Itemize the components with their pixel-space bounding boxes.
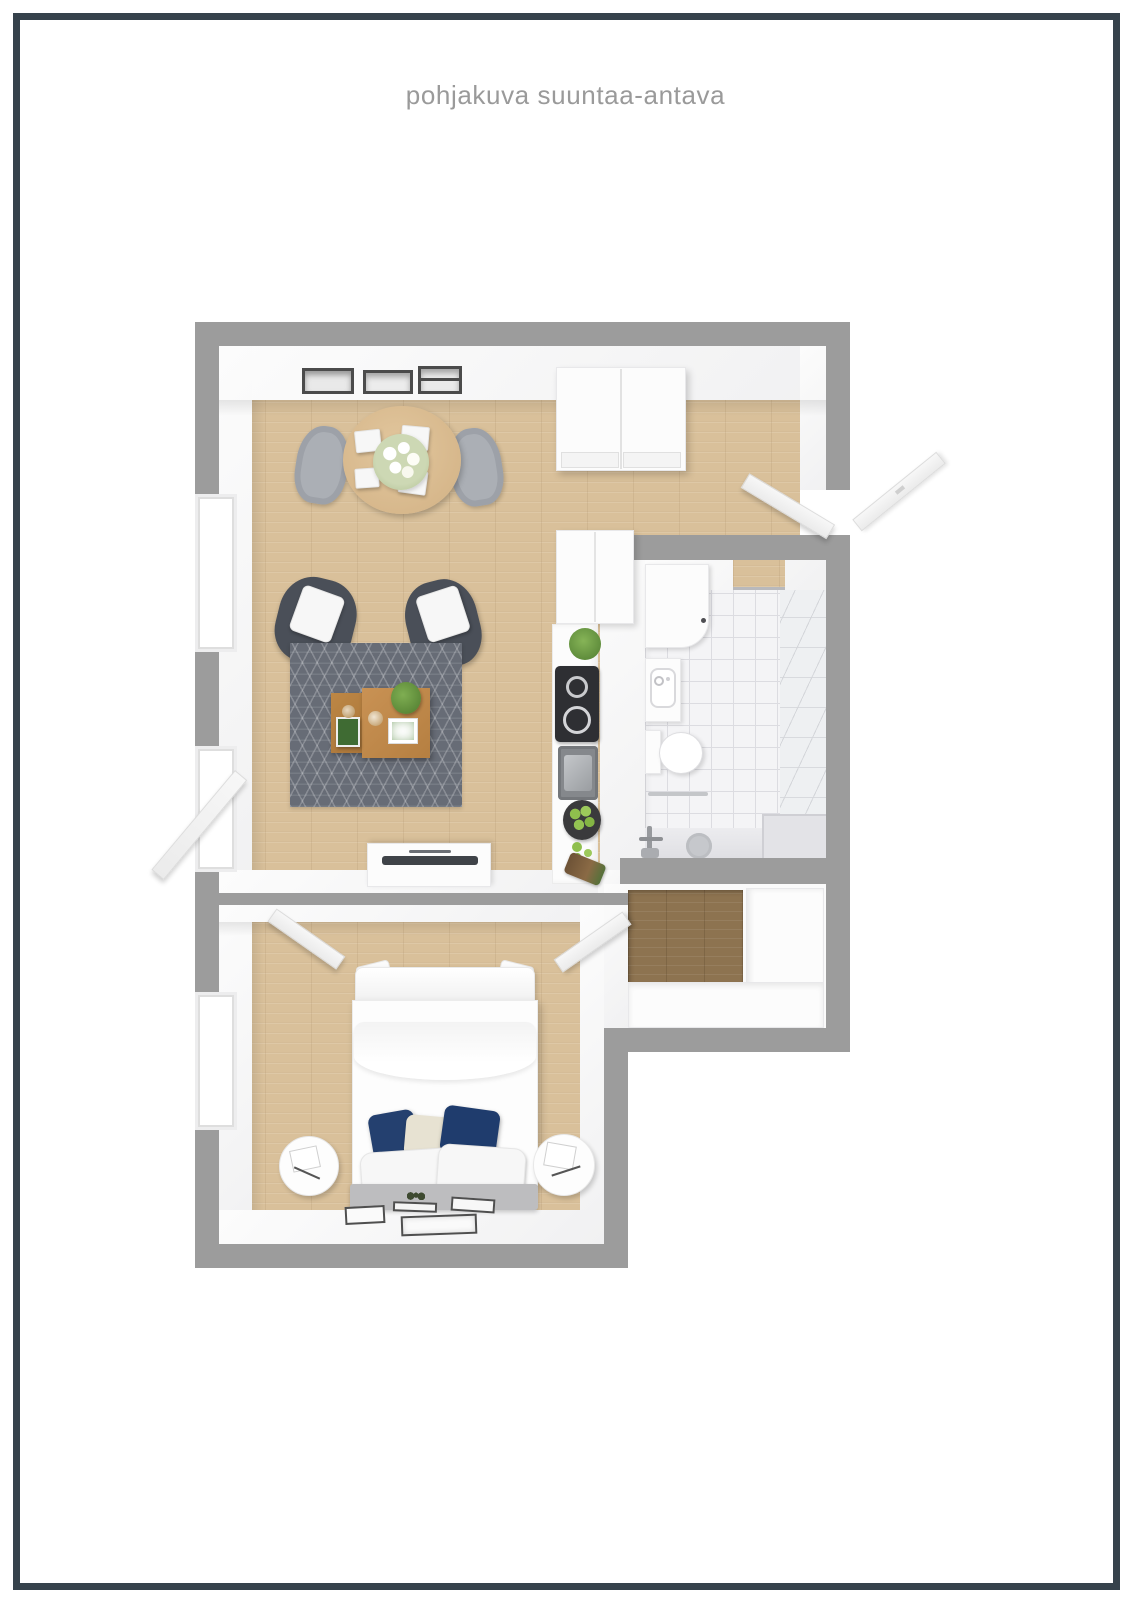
cooktop-burner-small-icon (566, 676, 588, 698)
wardrobe-drawer-right (623, 452, 681, 468)
wall-bedroom-right (604, 1028, 628, 1268)
toilet-bowl (659, 732, 703, 774)
wall-bathroom-right (826, 535, 850, 858)
bathroom-step-bench (762, 814, 826, 858)
towel-rail-icon (648, 792, 708, 796)
floor-frame-2 (393, 1201, 437, 1213)
hall-closet-horizontal (628, 982, 824, 1028)
wall-right-upper (826, 322, 850, 490)
bedroom-left-shadow (252, 922, 264, 1210)
wardrobe-drawer-left (561, 452, 619, 468)
floor-plan-page: pohjakuva suuntaa-antava (0, 0, 1131, 1600)
washbasin-drain-icon (666, 677, 670, 681)
wall-bottom (195, 1244, 628, 1268)
wall-hall-bottom (604, 1028, 850, 1052)
bathroom-doorway (733, 560, 785, 590)
wall-top (195, 322, 850, 346)
hall-floor (628, 890, 743, 984)
entry-right-wall-face (800, 346, 826, 490)
wall-bathroom-bottom (620, 858, 850, 884)
books-on-table (336, 717, 360, 747)
apple-1 (572, 842, 582, 852)
wardrobe-door-seam (620, 369, 622, 469)
nightstand-right-book (543, 1142, 577, 1171)
kitchen-cabinet-seam (594, 532, 596, 622)
page-title: pohjakuva suuntaa-antava (0, 80, 1131, 111)
flower-bouquet (373, 434, 429, 490)
wall-hall-right (826, 884, 850, 1028)
kitchen-herb-plant (569, 628, 601, 660)
hall-west-wall-face (604, 884, 628, 1028)
floor-frame-4 (451, 1196, 496, 1213)
bed-folded-sheet (354, 1022, 536, 1080)
postcard-on-table (388, 718, 418, 744)
wall-art-frame-2 (363, 370, 413, 394)
tv-bench-tray (382, 856, 478, 865)
cup-large (368, 711, 383, 726)
wall-bathroom-top (620, 535, 850, 560)
shower-mixer-icon (639, 837, 663, 841)
floor-frame-3 (401, 1214, 478, 1237)
cooktop-burner-large-icon (563, 706, 591, 734)
apartment-floor-plan (195, 322, 850, 1268)
shower-handset-icon (641, 848, 659, 858)
living-top-shadow (219, 400, 826, 416)
cup-small (342, 705, 355, 718)
floor-drain-icon (686, 833, 712, 859)
floor-frame-1 (345, 1205, 386, 1225)
living-left-shadow (252, 400, 266, 870)
coffee-table-plant (391, 682, 421, 714)
fruit-bowl (563, 800, 601, 840)
washing-machine-knob-icon (701, 618, 706, 623)
washbasin-faucet-icon (654, 676, 664, 686)
apple-2 (584, 849, 592, 857)
kitchen-sink-basin (564, 755, 592, 791)
washbasin-bowl (650, 668, 676, 708)
wall-art-frame-1 (302, 368, 354, 394)
tv-bench-handle (409, 850, 451, 853)
floor-sprig-icon (407, 1192, 425, 1200)
washing-machine (645, 564, 709, 648)
wall-divider-living-bedroom (195, 893, 628, 905)
bedroom-window (195, 992, 237, 1130)
living-room-window (195, 494, 237, 652)
wall-art-frame-3-divider (421, 378, 459, 381)
